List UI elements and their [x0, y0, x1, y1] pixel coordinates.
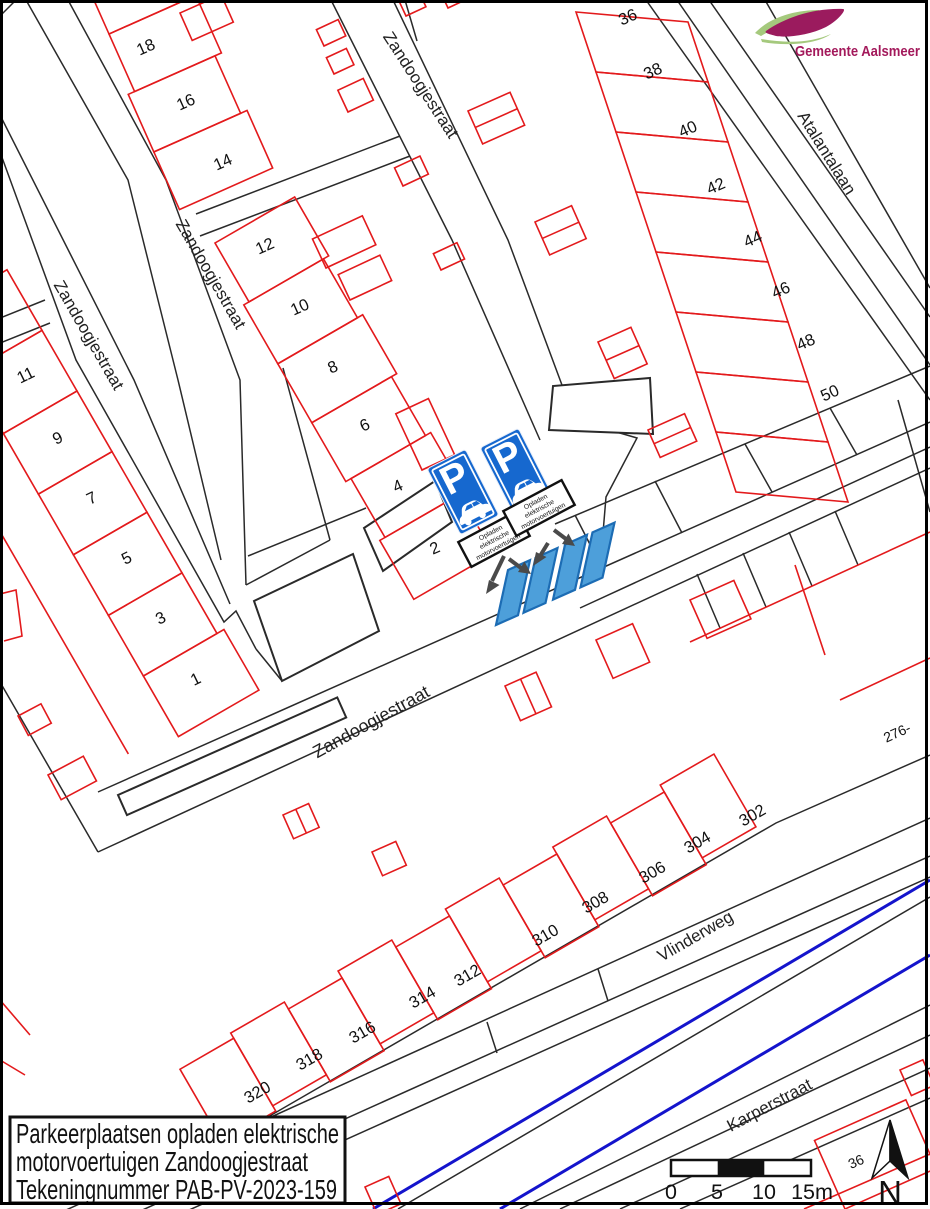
- svg-text:10: 10: [752, 1180, 776, 1204]
- svg-text:5: 5: [711, 1180, 723, 1204]
- svg-text:Tekeningnummer PAB-PV-2023-159: Tekeningnummer PAB-PV-2023-159: [16, 1174, 337, 1205]
- svg-text:Gemeente Aalsmeer: Gemeente Aalsmeer: [795, 43, 920, 60]
- svg-text:motorvoertuigen Zandoogjestraa: motorvoertuigen Zandoogjestraat: [16, 1146, 308, 1177]
- svg-text:15m: 15m: [791, 1180, 833, 1204]
- svg-text:0: 0: [665, 1180, 677, 1204]
- svg-text:Parkeerplaatsen opladen elektr: Parkeerplaatsen opladen elektrische: [16, 1118, 339, 1149]
